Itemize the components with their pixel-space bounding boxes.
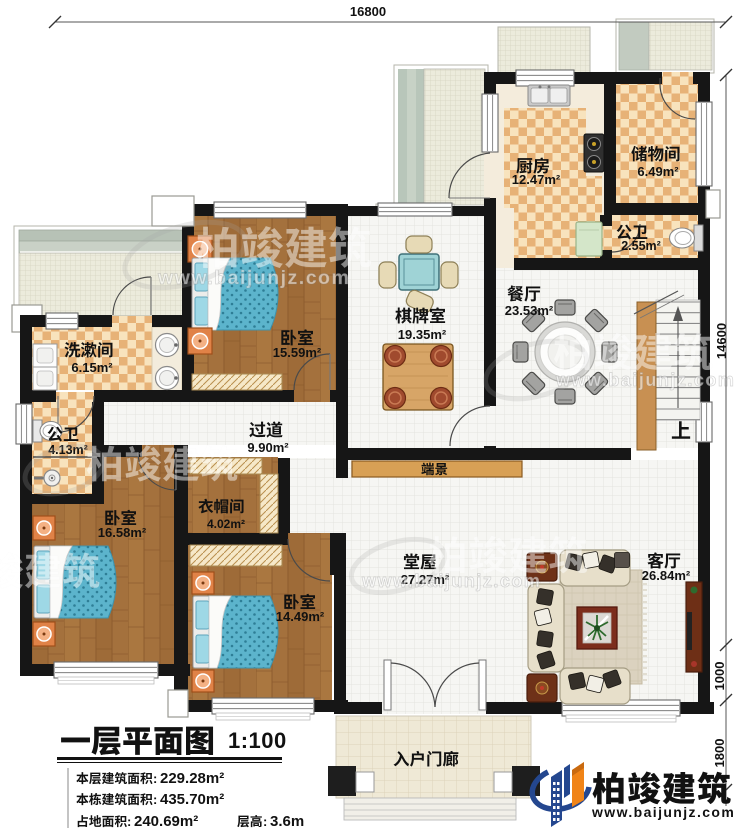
svg-text:www.baijunjz.com: www.baijunjz.com [591, 804, 735, 820]
svg-text:14600: 14600 [714, 323, 729, 359]
svg-text:16800: 16800 [350, 4, 386, 19]
svg-text:3.6m: 3.6m [270, 813, 304, 830]
svg-text:6.15m²: 6.15m² [71, 360, 113, 375]
svg-text:www.baijunjz.com: www.baijunjz.com [361, 571, 541, 591]
svg-text:12.47m²: 12.47m² [512, 172, 561, 187]
svg-text:4.02m²: 4.02m² [207, 517, 245, 531]
svg-text:16.58m²: 16.58m² [98, 525, 147, 540]
svg-text:9.90m²: 9.90m² [247, 440, 289, 455]
svg-text:240.69m²: 240.69m² [134, 813, 198, 830]
svg-text:229.28m²: 229.28m² [160, 770, 224, 787]
svg-text:1800: 1800 [712, 739, 727, 768]
svg-text::: : [153, 771, 157, 786]
svg-text:www.baijunjz.com: www.baijunjz.com [157, 267, 350, 289]
svg-text:19.35m²: 19.35m² [398, 327, 447, 342]
svg-text:23.53m²: 23.53m² [505, 303, 554, 318]
svg-text:435.70m²: 435.70m² [160, 791, 224, 808]
svg-text::: : [263, 814, 267, 829]
svg-text:2.55m²: 2.55m² [621, 239, 661, 253]
svg-text:26.84m²: 26.84m² [642, 568, 691, 583]
svg-text:www.baijunjz.com: www.baijunjz.com [555, 370, 735, 390]
svg-text::: : [153, 792, 157, 807]
svg-text:6.49m²: 6.49m² [637, 164, 679, 179]
svg-text:15.59m²: 15.59m² [273, 345, 322, 360]
svg-text:1000: 1000 [712, 662, 727, 691]
svg-text::: : [127, 814, 131, 829]
svg-text:1:100: 1:100 [228, 728, 287, 753]
svg-text:14.49m²: 14.49m² [276, 609, 325, 624]
